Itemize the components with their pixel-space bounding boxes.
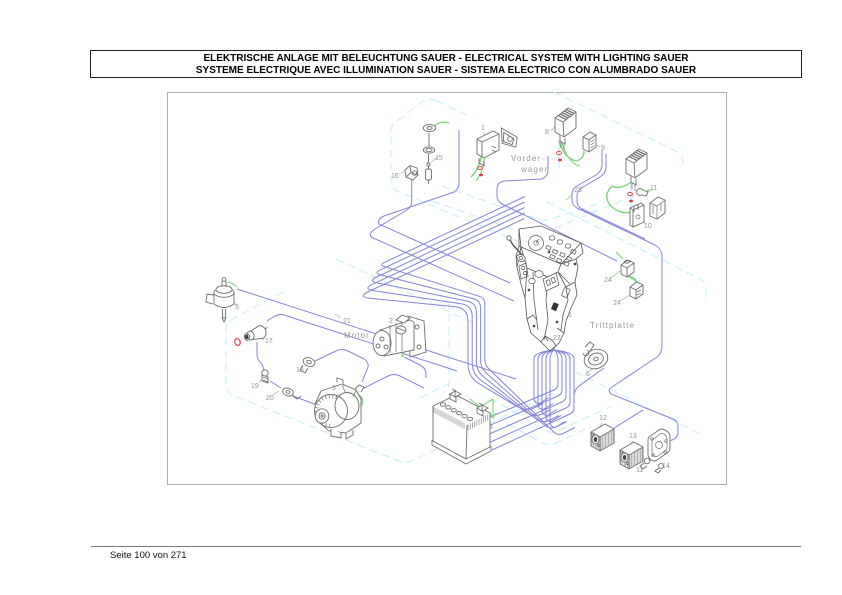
svg-text:24: 24 [604,277,612,284]
svg-text:2: 2 [389,318,393,325]
svg-text:5: 5 [235,304,239,311]
svg-text:Vorder-: Vorder- [511,154,545,163]
svg-text:23: 23 [574,187,582,194]
svg-text:11: 11 [650,185,657,192]
svg-text:20: 20 [266,395,274,402]
svg-text:Trittplatte: Trittplatte [590,321,635,330]
svg-text:wagen: wagen [520,165,550,174]
svg-text:8: 8 [545,129,549,136]
svg-text:18: 18 [296,367,304,374]
svg-text:19: 19 [251,383,259,390]
svg-text:16: 16 [391,173,399,180]
svg-text:11: 11 [636,467,643,474]
svg-text:13: 13 [629,433,637,440]
svg-text:12: 12 [599,415,607,422]
svg-text:9: 9 [601,145,605,152]
svg-text:3: 3 [332,385,336,392]
svg-text:17: 17 [265,338,273,345]
svg-text:15: 15 [435,155,443,162]
svg-text:10: 10 [644,223,652,230]
svg-text:1: 1 [568,312,572,319]
svg-text:6: 6 [586,371,590,378]
svg-text:14: 14 [662,463,670,470]
svg-text:22: 22 [553,335,561,342]
svg-text:4: 4 [489,424,493,431]
svg-text:24: 24 [613,300,621,307]
svg-text:1: 1 [481,125,485,132]
svg-text:Motor: Motor [344,331,370,340]
svg-text:21: 21 [343,318,351,325]
